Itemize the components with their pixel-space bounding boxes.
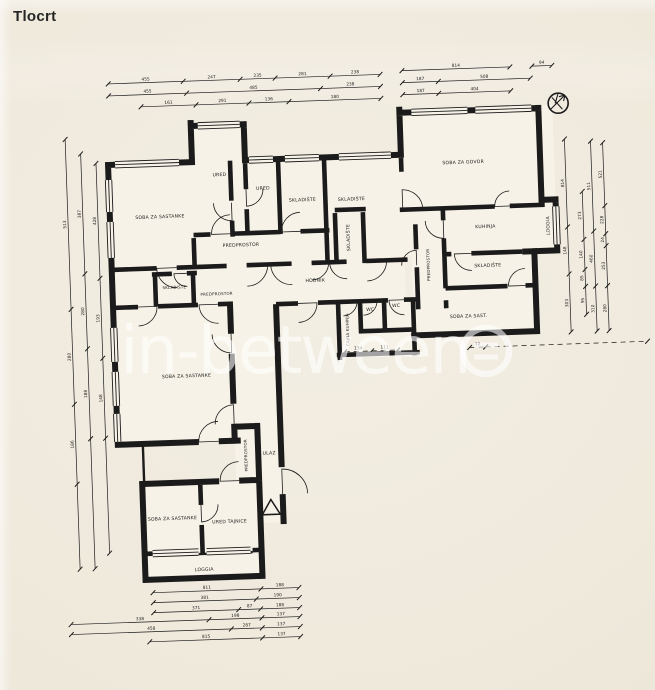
door-arc xyxy=(282,468,308,494)
dim-line xyxy=(486,341,648,347)
room-label-ured-1: URED xyxy=(212,172,226,178)
dim-label: 280 xyxy=(80,307,86,316)
dim-label: 811 xyxy=(203,585,212,591)
dim-label: 228 xyxy=(599,215,605,224)
dim-label: 381 xyxy=(201,595,210,601)
dim-label: 247 xyxy=(207,74,216,80)
dim-label: 458 xyxy=(147,626,156,632)
dim-label: 134 xyxy=(354,345,363,351)
dim-label: 428 xyxy=(92,216,98,225)
dim-label: 404 xyxy=(470,86,479,92)
dim-label: 273 xyxy=(577,211,583,220)
dim-label: 186 xyxy=(70,440,76,449)
dim-label: 303 xyxy=(564,299,570,308)
dim-line xyxy=(603,143,610,331)
room-label-ulaz: ULAZ xyxy=(263,450,276,456)
dim-label: 187 xyxy=(416,88,425,94)
dim-label: 310 xyxy=(590,304,596,313)
dim-label: 814 xyxy=(452,63,461,69)
room-label-loggia-2: LOGGIA xyxy=(195,567,215,574)
dim-label: 460 xyxy=(588,254,594,263)
dim-label: 87 xyxy=(247,603,253,609)
dim-label: 161 xyxy=(164,100,173,106)
dim-label: 190 xyxy=(273,592,282,598)
dim-label: 238 xyxy=(346,81,355,87)
dim-label: 280 xyxy=(67,352,73,361)
dim-label: 188 xyxy=(276,602,285,608)
dim-label: 814 xyxy=(560,179,566,188)
dim-label: 188 xyxy=(83,389,89,398)
floor-plan-drawing: 4552472352812388149445548523818750816129… xyxy=(0,0,655,690)
dim-label: 148 xyxy=(562,246,568,255)
dim-label: 235 xyxy=(253,73,262,79)
dim-label: 387 xyxy=(77,210,83,219)
room-label-ured-tajnice: URED TAJNICE xyxy=(212,518,247,525)
north-compass-icon xyxy=(548,93,569,114)
dim-line xyxy=(71,617,300,625)
dim-label: 815 xyxy=(202,634,211,640)
dim-label: 187 xyxy=(416,76,425,82)
dim-line xyxy=(71,627,300,635)
dim-label: 12 xyxy=(475,341,481,347)
dim-label: 291 xyxy=(218,98,227,104)
dim-label: 198 xyxy=(231,613,240,619)
dim-label: 148 xyxy=(98,394,104,403)
dim-label: 180 xyxy=(331,94,340,100)
room-floor xyxy=(399,104,557,255)
dim-label: 95 xyxy=(580,297,586,303)
dim-label: 140 xyxy=(578,250,584,259)
room-label-ured-2: URED xyxy=(256,185,270,191)
dim-label: 24 xyxy=(600,237,606,243)
dim-line xyxy=(591,141,598,331)
dim-label: 111 xyxy=(380,344,389,350)
room-label-wc-1: WC xyxy=(366,307,374,313)
dim-label: 455 xyxy=(141,76,150,82)
dim-label: 253 xyxy=(601,261,607,270)
dim-label: 238 xyxy=(351,69,360,75)
dim-label: 455 xyxy=(143,88,152,94)
dim-line xyxy=(141,98,381,106)
dim-label: 521 xyxy=(598,170,604,179)
room-label-skladiste-5: SKLADIŠTE xyxy=(162,284,186,290)
dim-line xyxy=(81,154,95,569)
dim-label: 508 xyxy=(480,74,489,80)
scanned-floorplan-page: { "page": { "title": "Tlocrt" }, "waterm… xyxy=(0,0,655,690)
dim-label: 485 xyxy=(249,85,258,91)
dim-label: 137 xyxy=(277,631,286,637)
dim-label: 287 xyxy=(243,622,252,628)
dim-label: 371 xyxy=(192,605,201,611)
dim-label: 193 xyxy=(95,314,101,323)
dim-label: 338 xyxy=(136,616,145,622)
dim-label: 281 xyxy=(298,71,307,77)
dim-label: 280 xyxy=(602,304,608,313)
dim-tick xyxy=(645,339,650,344)
dim-label: 513 xyxy=(62,220,68,229)
room-label-hodnik: HODNIK xyxy=(305,277,326,284)
dim-label: 188 xyxy=(276,582,285,588)
dim-label: 136 xyxy=(265,96,274,102)
door-arc xyxy=(298,303,318,323)
dim-label: 85 xyxy=(579,275,585,281)
dim-label: 94 xyxy=(539,60,545,66)
room-label-loggia-1: LOGGIA xyxy=(545,215,552,235)
dim-label: 137 xyxy=(277,611,286,617)
dim-label: 137 xyxy=(277,621,286,627)
dim-line xyxy=(150,637,301,642)
room-label-kuhinja: KUHINJA xyxy=(475,223,496,230)
dim-label: 511 xyxy=(586,182,592,191)
room-label-wc-2: WC xyxy=(392,303,400,309)
